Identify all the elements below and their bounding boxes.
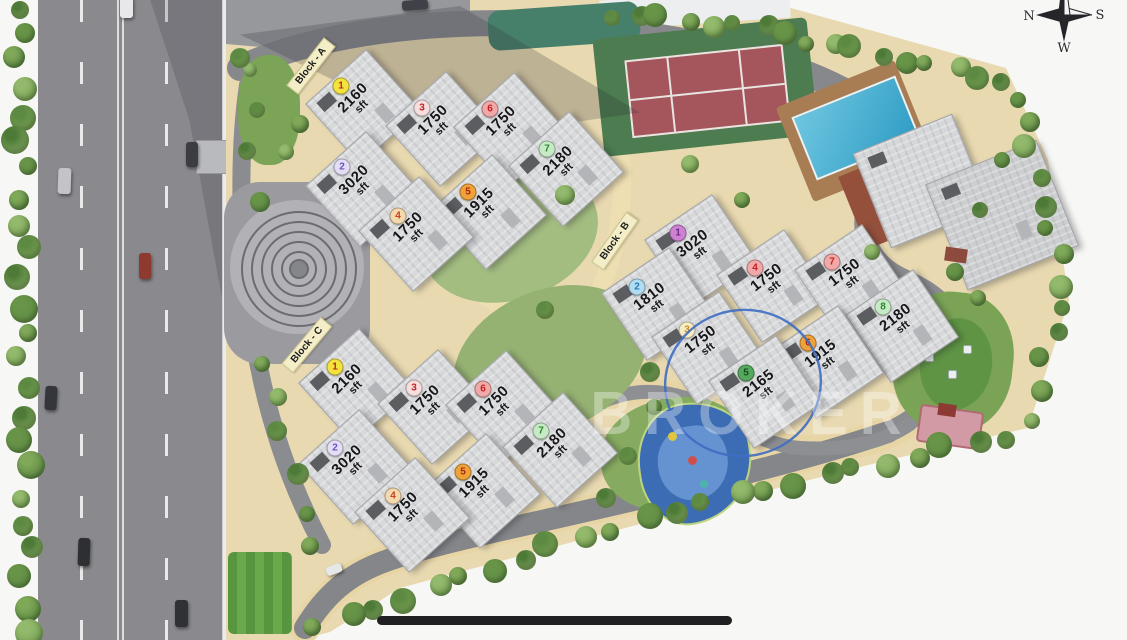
compass-n-label: N <box>1023 9 1034 24</box>
tree <box>666 502 688 524</box>
tree <box>15 619 43 640</box>
tree <box>997 431 1015 449</box>
tree <box>430 574 452 596</box>
tree <box>994 152 1010 168</box>
tree <box>1050 323 1068 341</box>
tree <box>753 481 773 501</box>
car <box>44 386 57 411</box>
tree <box>875 48 893 66</box>
tree <box>619 447 637 465</box>
tree <box>1054 300 1070 316</box>
tree <box>1031 380 1053 402</box>
tree <box>17 235 41 259</box>
tree <box>483 559 507 583</box>
car <box>175 600 188 627</box>
tree <box>837 34 861 58</box>
car <box>402 0 429 11</box>
tree <box>516 550 536 570</box>
tree <box>13 516 33 536</box>
tree <box>604 10 620 26</box>
tree <box>798 36 814 52</box>
tree <box>269 388 287 406</box>
tree <box>970 431 992 453</box>
tree <box>267 421 287 441</box>
compass-star-highlight <box>1064 0 1070 15</box>
tree <box>575 526 597 548</box>
car <box>120 0 133 18</box>
tree <box>1029 347 1049 367</box>
tree <box>9 190 29 210</box>
tree <box>724 15 740 31</box>
tree <box>734 192 750 208</box>
car <box>78 538 91 566</box>
tree <box>12 490 30 508</box>
tree <box>864 244 880 260</box>
tree <box>681 155 699 173</box>
tree <box>238 142 256 160</box>
tree <box>7 564 31 588</box>
generated-layer: Block - A12160sft23020sft31750sft41750sf… <box>0 0 1127 640</box>
tree <box>682 13 700 31</box>
tree <box>532 531 558 557</box>
tree <box>1010 92 1026 108</box>
compass-rose: N S W <box>1012 0 1116 70</box>
tree <box>13 77 37 101</box>
tree <box>1 126 29 154</box>
tree <box>21 536 43 558</box>
tree <box>910 448 930 468</box>
car <box>58 168 72 194</box>
tree <box>916 55 932 71</box>
tree <box>11 1 29 19</box>
tree <box>287 463 309 485</box>
tree <box>1054 244 1074 264</box>
tree <box>230 48 250 68</box>
tree <box>1033 169 1051 187</box>
tree <box>703 16 725 38</box>
tree <box>291 115 309 133</box>
tree <box>249 102 265 118</box>
tree <box>637 503 663 529</box>
compass-s-label: S <box>1096 8 1105 23</box>
tree <box>1024 413 1040 429</box>
tree <box>822 462 844 484</box>
tree <box>970 290 986 306</box>
tree <box>6 346 26 366</box>
tree <box>640 362 660 382</box>
tree <box>303 618 321 636</box>
tree <box>972 202 988 218</box>
car <box>186 142 198 167</box>
tree <box>342 602 366 626</box>
tree <box>773 21 797 45</box>
tree <box>254 356 270 372</box>
tree <box>965 66 989 90</box>
tree <box>731 480 755 504</box>
tree <box>299 506 315 522</box>
tree <box>15 596 41 622</box>
tree <box>646 399 662 415</box>
car <box>325 563 343 577</box>
tree <box>896 52 918 74</box>
tree <box>8 215 30 237</box>
tree <box>876 454 900 478</box>
tree <box>3 46 25 68</box>
block-label-banner: Block - B <box>591 212 638 271</box>
tree <box>946 263 964 281</box>
tree <box>250 192 270 212</box>
tree <box>4 264 30 290</box>
tree <box>15 23 35 43</box>
tree <box>301 537 319 555</box>
tree <box>601 523 619 541</box>
tree <box>1037 220 1053 236</box>
tree <box>10 295 38 323</box>
tree <box>390 588 416 614</box>
tree <box>18 377 40 399</box>
tree <box>780 473 806 499</box>
tree <box>926 432 952 458</box>
tree <box>19 157 37 175</box>
tree <box>17 451 45 479</box>
tree <box>691 493 709 511</box>
compass-w-label: W <box>1057 41 1071 56</box>
tree <box>278 144 294 160</box>
tree <box>19 324 37 342</box>
tree <box>536 301 554 319</box>
site-plan-image: Block - A12160sft23020sft31750sft41750sf… <box>0 0 1127 640</box>
tree <box>596 488 616 508</box>
tree <box>1012 134 1036 158</box>
car <box>139 253 151 279</box>
tree <box>1049 275 1073 299</box>
tree <box>1020 112 1040 132</box>
tree <box>992 73 1010 91</box>
tree <box>555 185 575 205</box>
home-indicator[interactable] <box>377 616 732 625</box>
tree <box>1035 196 1057 218</box>
tree <box>643 3 667 27</box>
tree <box>6 427 32 453</box>
